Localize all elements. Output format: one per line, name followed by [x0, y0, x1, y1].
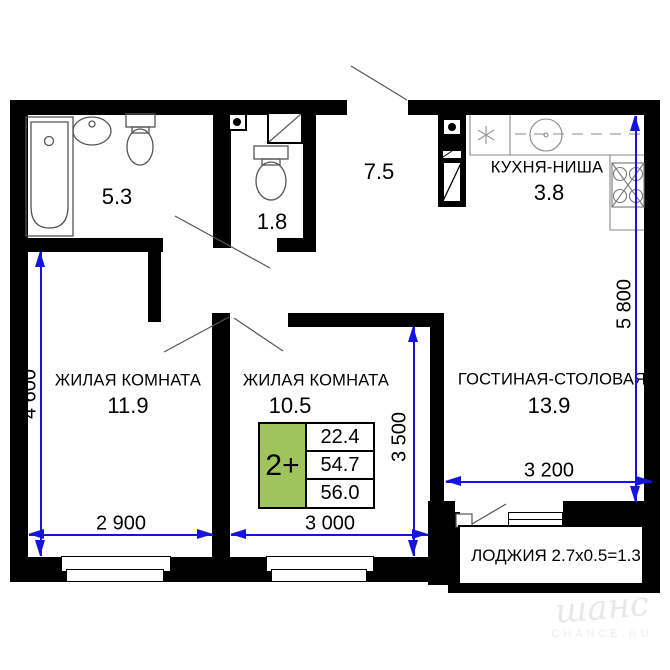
- bathtub-icon: [26, 117, 73, 236]
- arrow-up: [630, 115, 640, 131]
- wc-toilet-icon: [254, 146, 288, 200]
- bedroom1-door-swing: [164, 317, 229, 352]
- wc-area: 1.8: [257, 209, 288, 235]
- arrow-down: [630, 486, 640, 502]
- dim-living-width: 3 200: [524, 460, 574, 483]
- apartment-type-cell: 2+: [258, 422, 307, 509]
- watermark-site: CHANCE.RU: [551, 628, 652, 640]
- loggia-door-icon: [456, 504, 506, 527]
- dim-bedroom2-height: 3 500: [389, 412, 412, 462]
- dim-bedroom1-width: 2 900: [96, 513, 146, 536]
- bathroom-toilet-icon: [126, 114, 155, 165]
- arrow-left: [230, 529, 246, 539]
- dim-line-bedroom2-height: [413, 327, 415, 556]
- bedroom2-area: 10.5: [269, 393, 312, 419]
- arrow-up: [35, 251, 45, 267]
- living-area-cell: 22.4: [305, 422, 375, 453]
- arrow-right: [636, 476, 652, 486]
- dim-bedroom2-width: 3 000: [305, 513, 355, 536]
- apartment-type-label: 2+: [265, 449, 299, 483]
- arrow-right: [197, 529, 213, 539]
- bathroom-sink-icon: [73, 117, 111, 145]
- living-dining-area: 13.9: [528, 393, 571, 419]
- star-icon: [478, 126, 494, 144]
- washing-machine-diagonal: [269, 114, 301, 142]
- arrow-down: [408, 540, 418, 556]
- bathroom-area: 5.3: [102, 184, 133, 210]
- shaft-diagonal: [443, 163, 461, 201]
- dim-left-height: 4 600: [19, 369, 42, 419]
- entrance-door-swing: [351, 66, 407, 100]
- floor-plan: 5.3 1.8 7.5 КУХНЯ-НИША 3.8 ЖИЛАЯ КОМНАТА…: [0, 0, 670, 670]
- dim-right-height: 5 800: [614, 279, 637, 329]
- bedroom1-area: 11.9: [107, 393, 148, 419]
- area-without-loggia-value: 54.7: [321, 454, 360, 477]
- living-dining-label: ГОСТИНАЯ-СТОЛОВАЯ: [458, 371, 646, 390]
- stove-icon: [612, 163, 644, 207]
- kitchen-area: 3.8: [534, 180, 565, 206]
- bedroom2-door-swing: [234, 318, 283, 351]
- arrow-right: [412, 529, 428, 539]
- kitchen-label: КУХНЯ-НИША: [491, 159, 604, 178]
- bedroom1-label: ЖИЛАЯ КОМНАТА: [55, 372, 201, 391]
- total-area-cell: 56.0: [305, 478, 375, 509]
- area-without-loggia-cell: 54.7: [305, 450, 375, 481]
- arrow-up: [408, 326, 418, 342]
- arrow-down: [35, 540, 45, 556]
- arrow-left: [445, 476, 461, 486]
- watermark-brand: шанс: [553, 584, 650, 632]
- loggia-label: ЛОДЖИЯ 2.7x0.5=1.3: [471, 546, 641, 566]
- arrow-left: [28, 529, 44, 539]
- total-area-value: 56.0: [321, 482, 360, 505]
- bedroom2-label: ЖИЛАЯ КОМНАТА: [243, 372, 389, 391]
- hall-area: 7.5: [364, 159, 395, 185]
- living-area-value: 22.4: [321, 426, 360, 449]
- slit-diagonal: [443, 151, 452, 157]
